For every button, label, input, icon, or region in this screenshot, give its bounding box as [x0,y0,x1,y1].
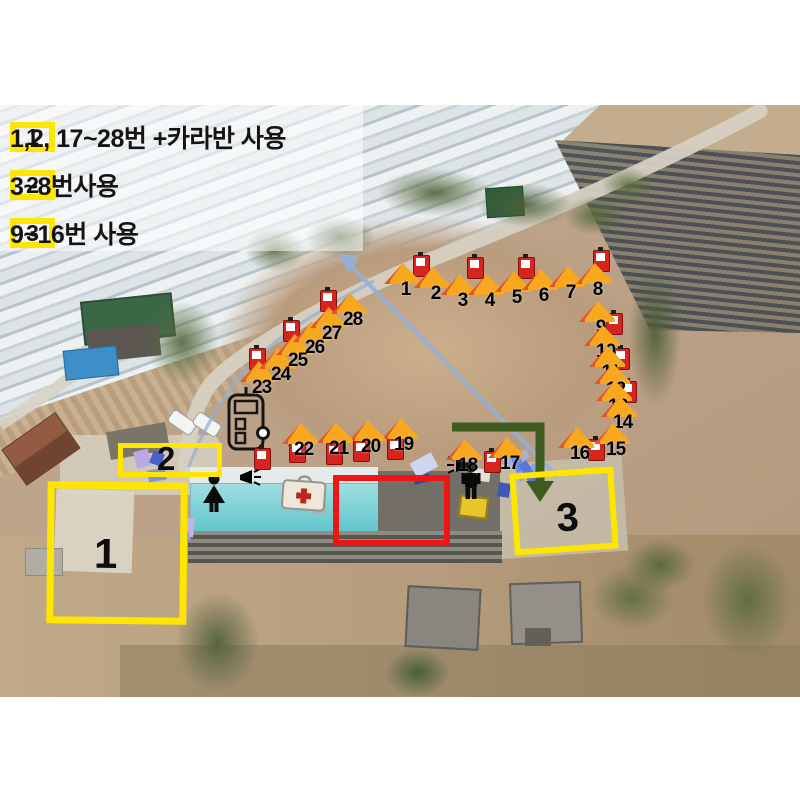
zone-2-label: 2 [157,442,175,475]
tent-number: 16 [570,443,589,465]
tent-marker-17: 17 [492,437,524,458]
tent-number: 15 [606,439,625,461]
tent-number: 20 [361,436,380,458]
legend-label-3: 9~16번 사용 [10,215,138,251]
tent-marker-16: 16 [562,427,594,448]
tent-marker-22: 22 [286,423,318,444]
tent-number: 19 [394,434,413,456]
tent-marker-21: 21 [321,422,353,443]
tent-number: 28 [343,309,362,331]
tent-number: 27 [322,323,341,345]
tent-marker-9: 9 [583,301,615,322]
zone-1-label: 1 [94,533,118,575]
fire-extinguisher-icon-13 [254,448,271,470]
tent-number: 5 [512,287,522,309]
tent-number: 21 [329,438,348,460]
tent-number: 23 [252,377,271,399]
tent-number: 17 [500,453,519,475]
tent-marker-15: 15 [598,423,630,444]
tent-number: 6 [539,285,549,307]
tent-marker-8: 8 [580,263,612,284]
tent-number: 3 [458,290,468,312]
zone-1-box: 1 [46,481,187,624]
legend-label-1: 1,2, 17~28번 +카라반 사용 [10,119,286,155]
tent-marker-10: 10 [588,325,620,346]
tent-marker-1: 1 [388,263,420,284]
tent-marker-18: 18 [450,439,482,460]
tent-number: 4 [485,290,495,312]
first-aid-kit-icon [282,475,326,511]
zone-3-box: 3 [509,466,618,555]
zone-3-label: 3 [555,497,580,538]
tent-marker-28: 28 [335,293,367,314]
legend-label-2: 3~8번사용 [10,167,118,203]
zone-2-box: 2 [118,443,222,477]
aerial-photo: 1 2 3 1 1,2, 17~28번 +카라반 사용 2 3~8번사용 3 9… [0,105,800,697]
tent-marker-20: 20 [353,420,385,441]
tent-number: 22 [294,439,313,461]
woman-icon [203,474,225,513]
tent-number: 8 [593,279,603,301]
tent-number: 7 [566,282,576,304]
tent-number: 1 [401,279,411,301]
tent-number: 18 [458,455,477,477]
floodlight-icon-left [240,469,261,485]
tent-marker-14: 14 [605,396,637,417]
tent-marker-19: 19 [386,418,418,439]
tent-number: 2 [431,283,441,305]
red-highlight-box [333,475,450,546]
